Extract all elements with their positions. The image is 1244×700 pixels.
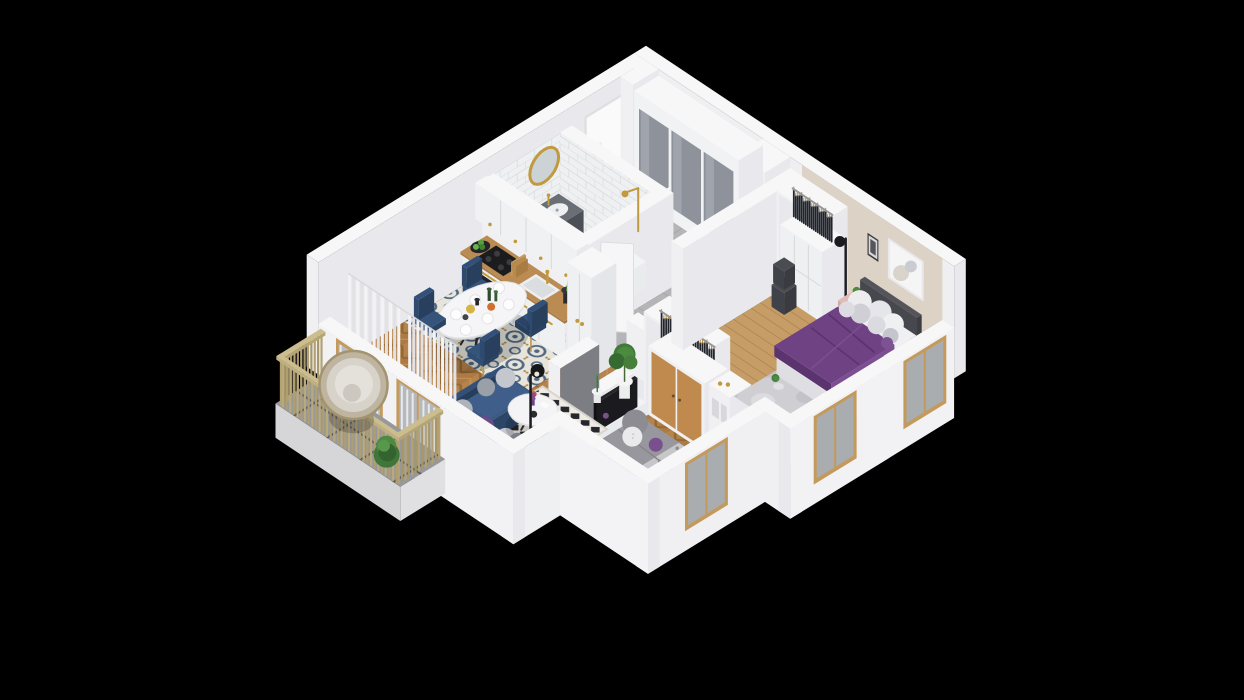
sofa-pillow <box>477 378 495 396</box>
living-sw-wall <box>513 447 525 544</box>
shower-head <box>621 190 628 197</box>
kids-pillow <box>622 427 642 447</box>
cutting-board <box>511 262 512 276</box>
sofa-pillow <box>496 368 516 388</box>
floorplan-render <box>0 0 1244 700</box>
kids-sw-wall <box>648 477 660 574</box>
yellow-plate <box>466 305 475 314</box>
cactus-pillow <box>649 438 663 452</box>
wine-bottle <box>488 289 491 301</box>
apartment-isometric-svg <box>0 0 1244 700</box>
bedroom-se-wall <box>779 421 791 519</box>
orange-dish <box>487 303 495 311</box>
north-east-wall <box>954 259 966 378</box>
bedroom-nw-wall <box>671 241 683 350</box>
